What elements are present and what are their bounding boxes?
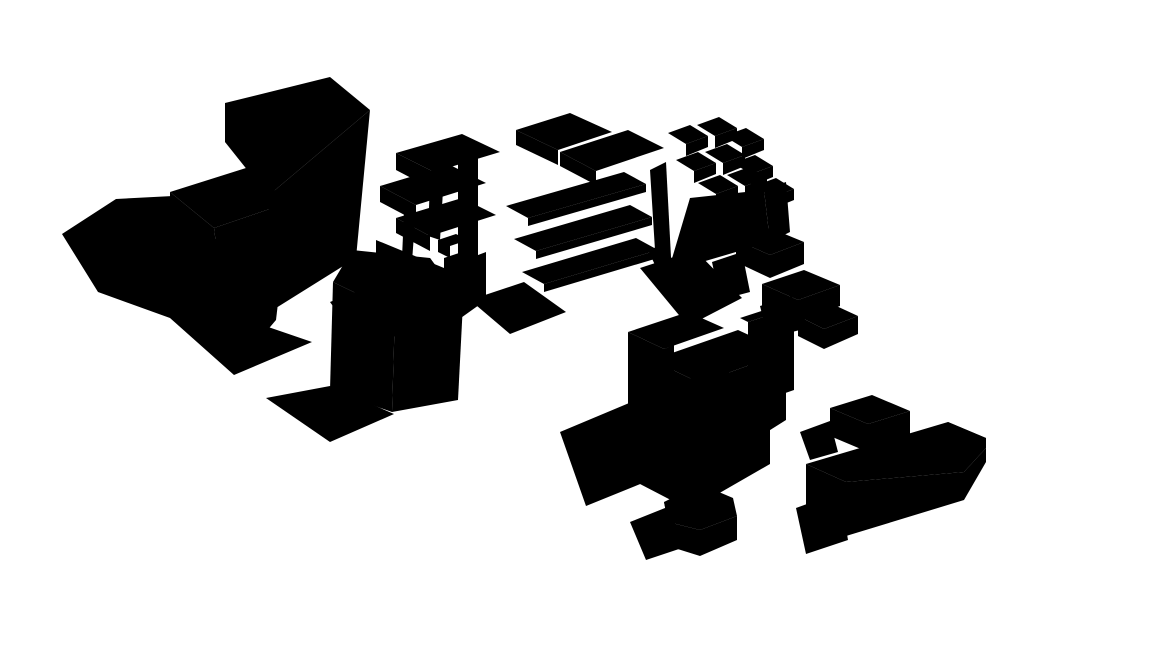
lb-bar-front xyxy=(846,472,964,536)
row-houses-road xyxy=(372,470,556,606)
boundary-sw-3 xyxy=(360,478,528,636)
boundary-se-2 xyxy=(702,504,1058,650)
tower-left-sliver xyxy=(225,103,232,146)
pent-right-face xyxy=(392,303,463,412)
te-stair-tower xyxy=(458,143,472,300)
boundary-sw-2 xyxy=(322,496,492,656)
castle-tower-tops xyxy=(668,117,794,209)
south-path-2 xyxy=(468,356,584,500)
te-balcony-rows xyxy=(506,172,658,292)
building-l-shaped xyxy=(806,395,986,536)
boundary-se-3 xyxy=(697,510,1050,655)
site-plan-canvas xyxy=(0,0,1157,656)
site-plan-svg xyxy=(0,0,1157,656)
building-central-slab-cluster xyxy=(628,303,794,510)
west-road-1 xyxy=(143,370,273,457)
te-stair-tower-side xyxy=(472,143,478,300)
west-road-2 xyxy=(153,361,283,448)
boundary-sw-1 xyxy=(332,489,502,652)
